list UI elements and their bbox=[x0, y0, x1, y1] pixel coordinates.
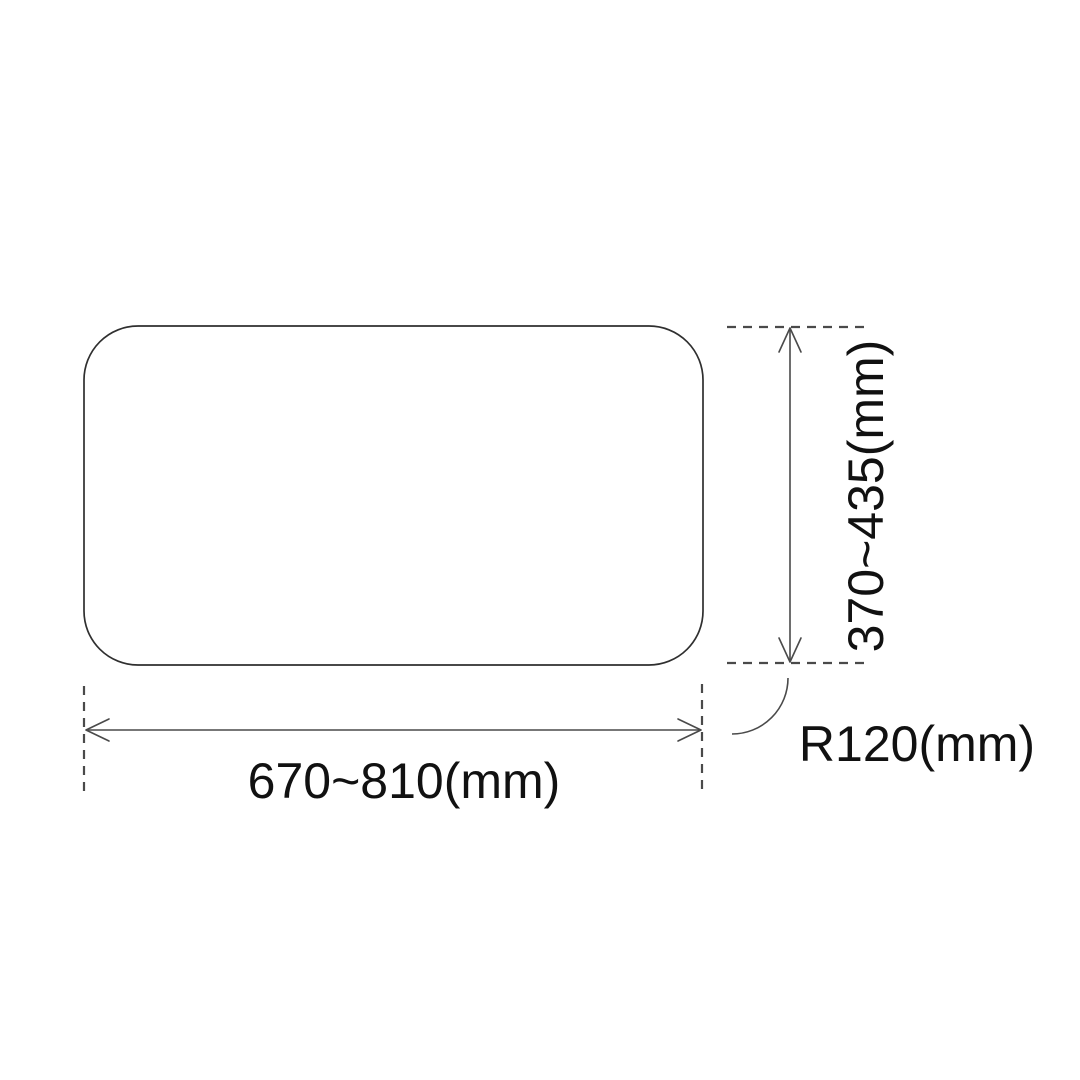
radius-leader-curve bbox=[732, 678, 788, 734]
dimension-drawing-canvas: 670~810(mm) 370~435(mm) R120(mm) bbox=[0, 0, 1080, 1080]
height-dimension: 370~435(mm) bbox=[727, 327, 894, 663]
width-dimension: 670~810(mm) bbox=[84, 684, 702, 809]
part-outline bbox=[84, 326, 703, 665]
height-dimension-label: 370~435(mm) bbox=[838, 340, 894, 653]
dimension-drawing: 670~810(mm) 370~435(mm) R120(mm) bbox=[0, 0, 1080, 1080]
radius-dimension-label: R120(mm) bbox=[799, 716, 1035, 772]
radius-callout: R120(mm) bbox=[732, 678, 1035, 772]
width-dimension-label: 670~810(mm) bbox=[248, 753, 561, 809]
